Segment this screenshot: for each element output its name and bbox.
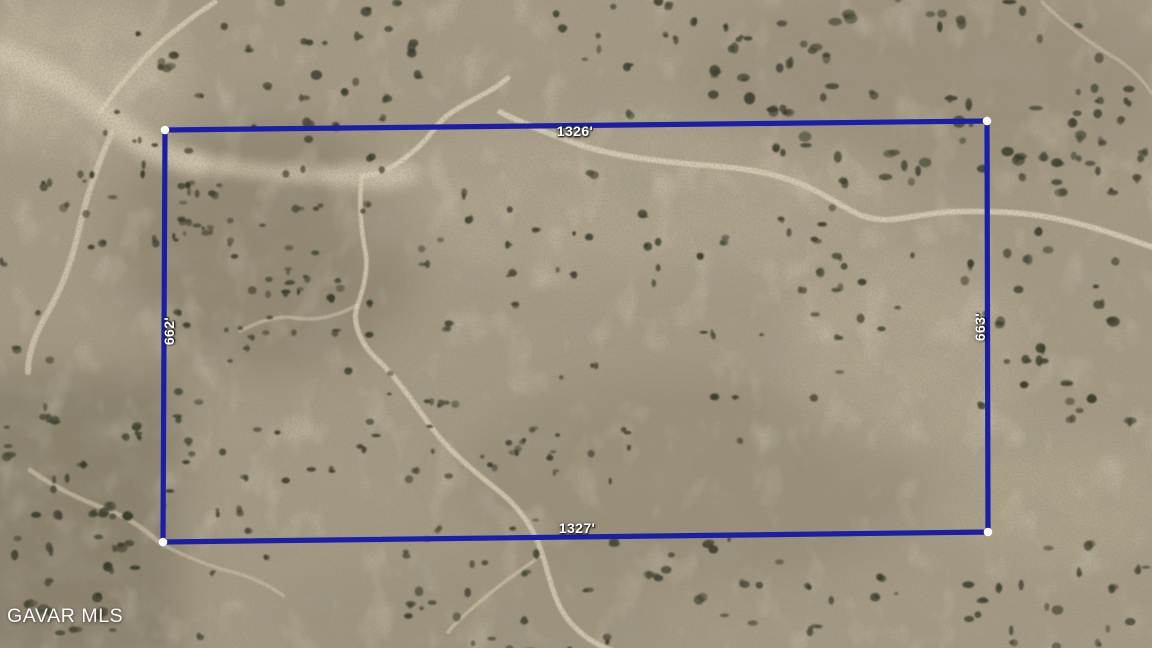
dimension-label-right: 663': [972, 313, 988, 341]
corner-marker: [984, 528, 993, 537]
mls-watermark: GAVAR MLS: [7, 605, 123, 628]
corner-marker: [161, 126, 170, 135]
dimension-label-top: 1326': [557, 123, 593, 139]
aerial-map: 1326' 1327' 662' 663' GAVAR MLS: [0, 0, 1152, 648]
parcel-boundary: [163, 121, 988, 542]
corner-marker: [159, 538, 168, 547]
dimension-label-bottom: 1327': [559, 520, 595, 536]
dimension-label-left: 662': [161, 317, 177, 345]
corner-markers: [159, 117, 993, 547]
corner-marker: [983, 117, 992, 126]
